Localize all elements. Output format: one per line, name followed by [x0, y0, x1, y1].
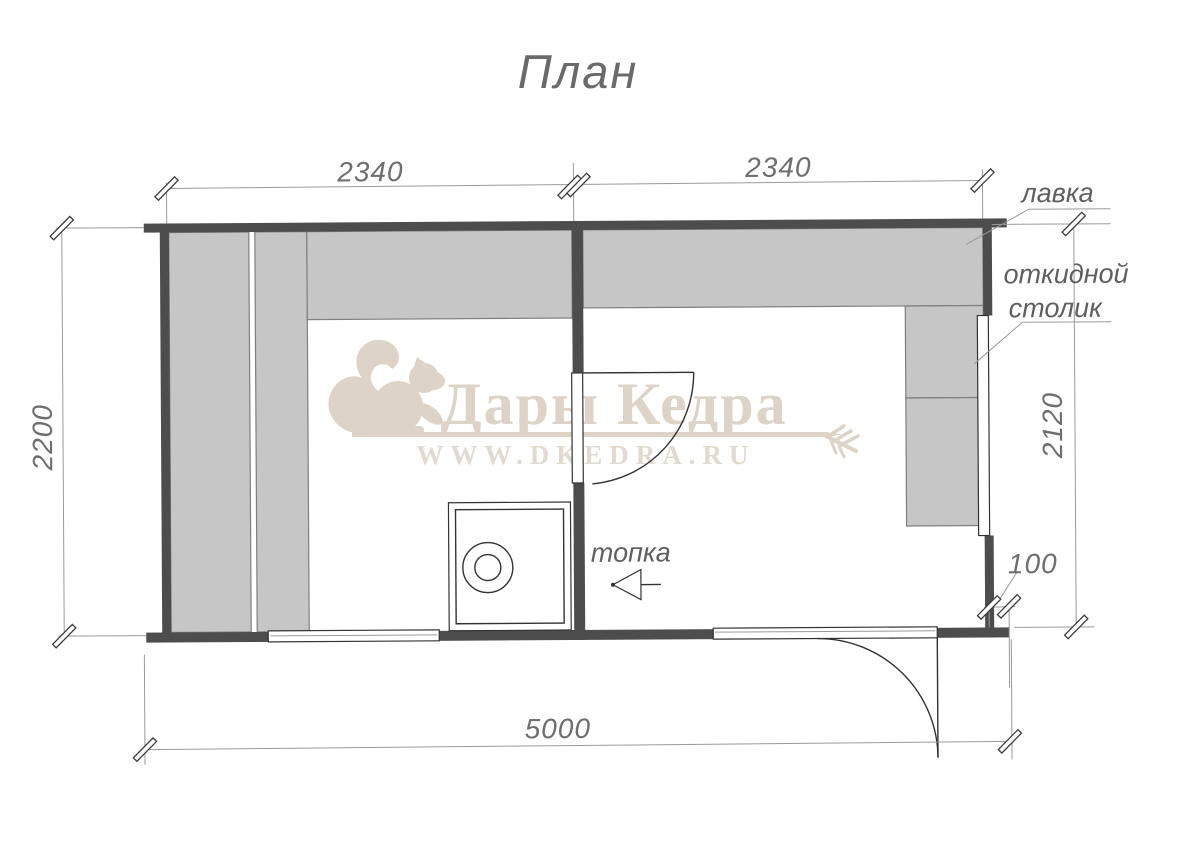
interior-door-open-leaf [583, 372, 694, 373]
steam-room-bench-top [307, 230, 573, 320]
firebox-label: топка [591, 537, 671, 567]
dim-top-right: 2340 [744, 152, 811, 183]
page-title: План [518, 45, 639, 98]
folding-table [977, 315, 989, 535]
watermark-site: WWW.DKEDRA.RU [416, 440, 755, 470]
stove [448, 502, 571, 631]
bench-label: лавка [1019, 178, 1093, 208]
dimension-left: 2200 [26, 216, 147, 648]
dim-offset: 100 [1008, 548, 1058, 579]
entrance-door-swing-arc [817, 638, 938, 759]
dim-left: 2200 [27, 404, 58, 471]
lounge-bench-right-lower [906, 398, 985, 526]
folding-table-label-line2: столик [1009, 293, 1104, 324]
interior-door-leaf [572, 373, 584, 483]
squirrel-icon [328, 340, 446, 435]
lounge-bench-right-upper [905, 306, 984, 398]
dim-top-left: 2340 [336, 156, 403, 187]
watermark-brand: Дары Кедра [440, 371, 787, 437]
floor-plan-page: План Дары Кедра WWW.DKEDRA.RU [0, 0, 1200, 848]
entrance-door-opening [713, 627, 937, 639]
window-bottom [268, 630, 439, 642]
partition-wall-upper [572, 221, 584, 373]
right-wall-upper [983, 218, 993, 315]
entrance-door-leaf [937, 638, 938, 757]
firebox-arrow-icon [611, 569, 661, 599]
dim-bottom: 5000 [525, 713, 591, 744]
watermark-underline [352, 432, 826, 437]
folding-table-label-line1: откидной [1003, 259, 1128, 290]
steam-room-bench-left [169, 232, 251, 632]
partition-wall-lower [573, 483, 585, 640]
plan-drawing: топка 2340 2340 2200 [25, 150, 1131, 766]
lounge-bench-top [583, 228, 983, 308]
wheat-icon [824, 426, 858, 457]
dimension-bottom: 5000 [133, 639, 1022, 764]
dimension-top: 2340 2340 [155, 150, 995, 223]
entrance-door [713, 627, 938, 759]
callout-folding-table: откидной столик [974, 259, 1129, 364]
steam-room-bench-second-tier [255, 232, 309, 632]
dim-right: 2120 [1037, 392, 1068, 459]
floor-plan-svg: План Дары Кедра WWW.DKEDRA.RU [0, 0, 1200, 848]
watermark: Дары Кедра WWW.DKEDRA.RU [328, 340, 858, 470]
